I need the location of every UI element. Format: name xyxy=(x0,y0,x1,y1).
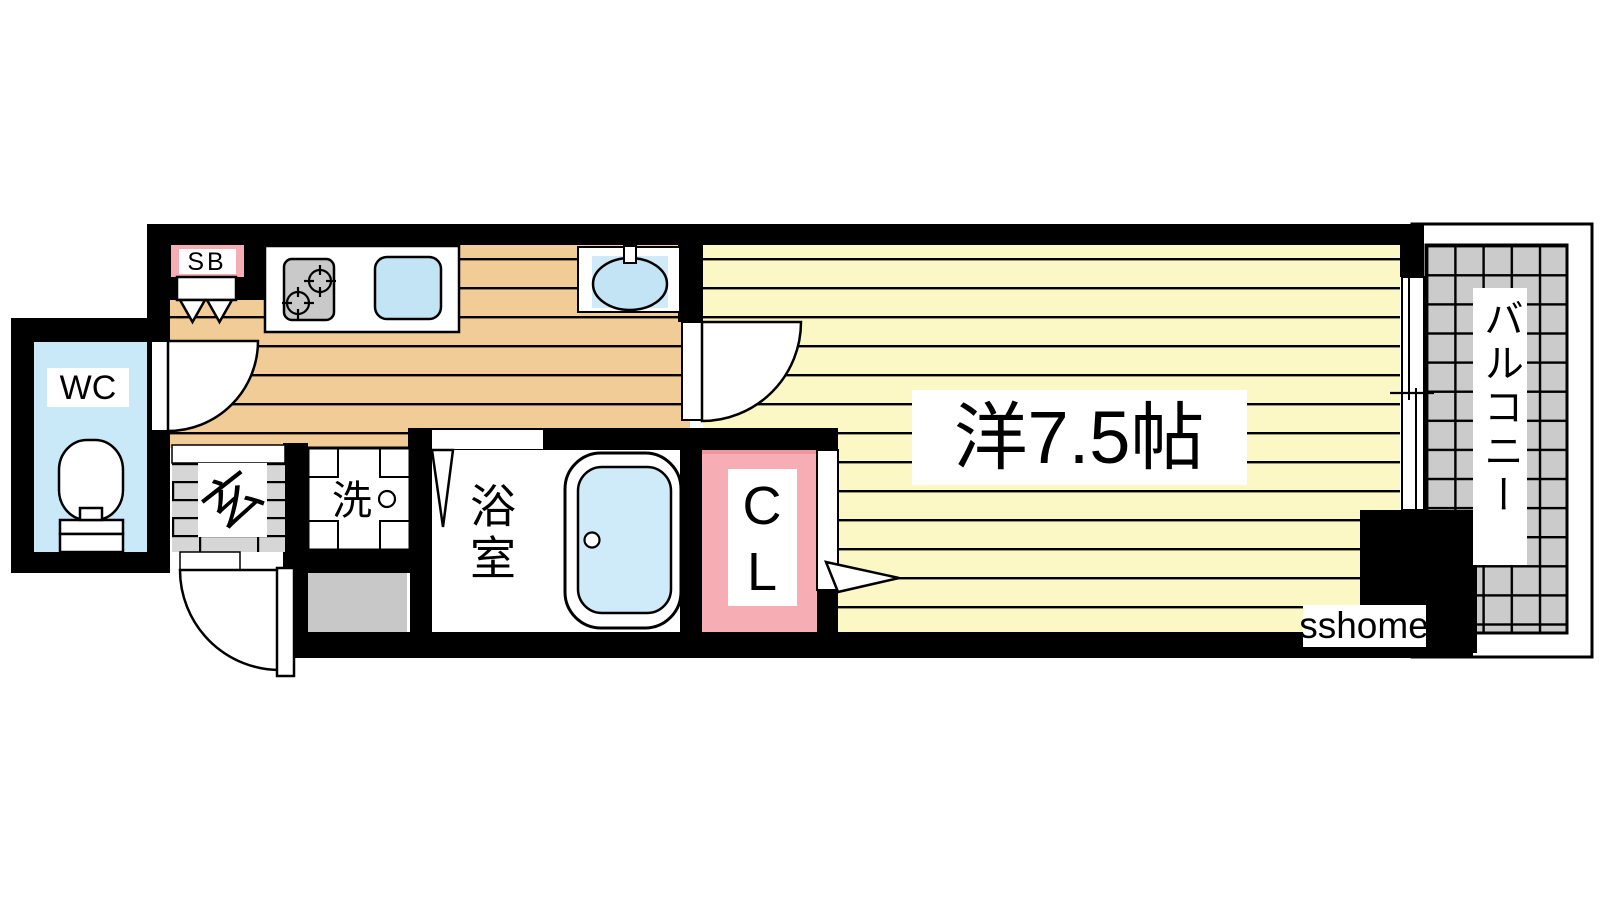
wall-below-closet-door xyxy=(817,590,838,632)
main-room-door-panel xyxy=(682,322,702,420)
basin-bowl xyxy=(593,258,667,310)
genkan-step xyxy=(172,445,285,463)
main-room-label: 洋7.5帖 xyxy=(954,396,1205,479)
room-genkan: 玄 xyxy=(172,445,285,570)
laundry-label: 洗 xyxy=(332,479,372,523)
entrance-door-panel xyxy=(277,568,294,676)
wall-kitchen-room-divider xyxy=(678,242,703,322)
room-bathroom: 浴室 xyxy=(432,430,681,632)
wc-label: WC xyxy=(60,369,117,407)
wall-bottom xyxy=(283,632,1473,658)
bathtub xyxy=(565,453,681,628)
wall-laundry-bottom xyxy=(308,550,410,573)
toilet xyxy=(59,440,123,552)
closet-label: CL xyxy=(732,476,792,608)
kitchen-sink xyxy=(375,257,441,319)
closet-top-line xyxy=(702,450,817,454)
balcony-label-group: バルコニー xyxy=(1473,288,1527,565)
wall-laundry-bath xyxy=(410,428,432,658)
main-room: 洋7.5帖 xyxy=(912,390,1247,485)
floorplan-canvas: WC SB xyxy=(0,0,1600,900)
watermark-text: sshome xyxy=(1299,605,1429,646)
wall-top xyxy=(147,224,1424,245)
sb-label: SB xyxy=(187,248,226,276)
watermark: sshome xyxy=(1299,605,1429,647)
laundry-pan: 洗 xyxy=(308,448,410,550)
basin-tap xyxy=(624,246,636,263)
bathtub-drain xyxy=(585,533,600,548)
wall-bath-closet xyxy=(680,450,702,632)
room-wc: WC xyxy=(34,342,147,552)
balcony-label: バルコニー xyxy=(1478,298,1522,518)
meter-box xyxy=(308,573,407,632)
bathroom-label: 浴室 xyxy=(464,482,516,586)
kitchen-counter xyxy=(265,246,459,332)
sb-cabinet xyxy=(177,277,236,300)
genkan-threshold xyxy=(180,552,240,570)
wash-basin xyxy=(578,246,680,312)
laundry-drain xyxy=(379,491,395,507)
bathroom-door-opening xyxy=(432,430,543,449)
wc-door-panel xyxy=(151,341,168,431)
wall-window-top-block xyxy=(1400,245,1424,277)
